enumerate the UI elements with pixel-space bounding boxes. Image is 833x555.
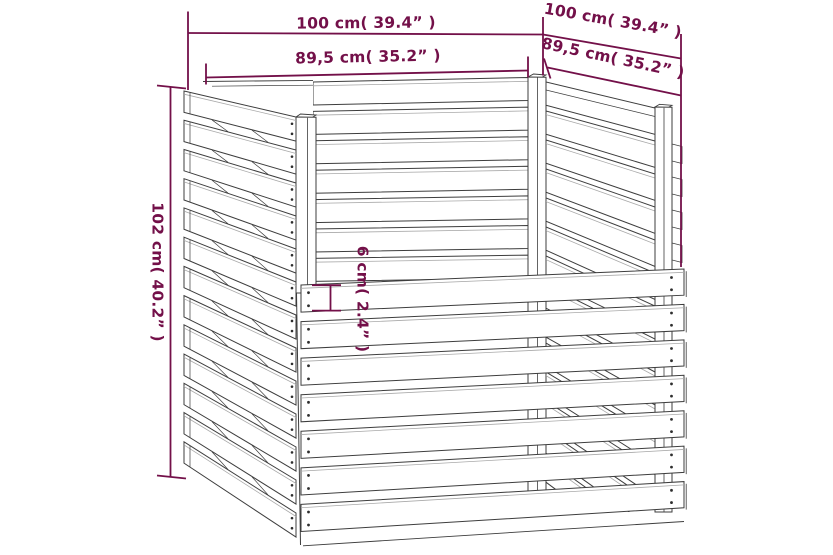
- screw-dot: [291, 428, 294, 431]
- screw-dot: [291, 122, 294, 125]
- dimension-label-height: 102 cm( 40.2” ): [149, 202, 167, 341]
- screw-dot: [670, 418, 673, 421]
- screw-dot: [291, 451, 294, 454]
- screw-dot: [670, 453, 673, 456]
- screw-dot: [291, 133, 294, 136]
- screw-dot: [307, 524, 310, 527]
- back-top-edge: [203, 80, 313, 81]
- screw-dot: [670, 466, 673, 469]
- dim-line: [188, 33, 543, 35]
- screw-dot: [670, 288, 673, 291]
- screw-dot: [291, 221, 294, 224]
- screw-dot: [291, 484, 294, 487]
- screw-dot: [670, 347, 673, 350]
- screw-dot: [291, 395, 294, 398]
- screw-dot: [291, 231, 294, 234]
- screw-dot: [291, 385, 294, 388]
- screw-dot: [307, 291, 310, 294]
- post-body: [296, 117, 316, 293]
- screw-dot: [670, 383, 673, 386]
- screw-dot: [670, 395, 673, 398]
- screw-dot: [307, 364, 310, 367]
- screw-dot: [670, 276, 673, 279]
- back-top-edge: [212, 85, 313, 86]
- dimension-label-slat-height: 6 cm( 2.4” ): [354, 246, 372, 353]
- screw-dot: [291, 264, 294, 267]
- screw-dot: [291, 155, 294, 158]
- screw-dot: [307, 328, 310, 331]
- screw-dot: [307, 451, 310, 454]
- screw-dot: [291, 297, 294, 300]
- line-drawing-canvas: 100 cm( 39.4” ) 89,5 cm( 35.2” ) 100 cm(…: [0, 0, 833, 555]
- back-wall-top-edge: [203, 80, 313, 86]
- corner-edge: [297, 293, 301, 545]
- dimension-label-front-inner-width: 89,5 cm( 35.2” ): [295, 46, 441, 67]
- screw-dot: [670, 359, 673, 362]
- screw-dot: [670, 324, 673, 327]
- screw-dot: [670, 489, 673, 492]
- screw-dot: [307, 487, 310, 490]
- back-wall-inside: [313, 78, 528, 282]
- left-wall: [184, 91, 296, 537]
- screw-dot: [307, 474, 310, 477]
- screw-dot: [291, 330, 294, 333]
- screw-dot: [291, 287, 294, 290]
- screw-dot: [307, 401, 310, 404]
- screw-dot: [307, 511, 310, 514]
- dim-tick: [157, 476, 186, 479]
- screw-dot: [291, 517, 294, 520]
- dimension-label-side-inner-depth: 89,5 cm( 35.2” ): [540, 34, 686, 82]
- screw-dot: [291, 494, 294, 497]
- screw-dot: [307, 414, 310, 417]
- screw-dot: [670, 430, 673, 433]
- screw-dot: [307, 341, 310, 344]
- screw-dot: [291, 320, 294, 323]
- screw-dot: [291, 353, 294, 356]
- screw-dot: [307, 437, 310, 440]
- composter-dimension-diagram: 100 cm( 39.4” ) 89,5 cm( 35.2” ) 100 cm(…: [0, 0, 833, 555]
- dimension-label-side-depth: 100 cm( 39.4” ): [543, 0, 683, 42]
- dim-tick: [157, 86, 186, 89]
- dim-line: [206, 71, 528, 78]
- screw-dot: [291, 363, 294, 366]
- screw-dot: [291, 527, 294, 530]
- screw-dot: [291, 418, 294, 421]
- screw-dot: [307, 304, 310, 307]
- screw-dot: [291, 188, 294, 191]
- screw-dot: [291, 461, 294, 464]
- screw-dot: [291, 165, 294, 168]
- dimension-label-front-width: 100 cm( 39.4” ): [296, 13, 436, 32]
- screw-dot: [670, 312, 673, 315]
- screw-dot: [670, 501, 673, 504]
- screw-dot: [291, 254, 294, 257]
- screw-dot: [291, 198, 294, 201]
- screw-dot: [307, 377, 310, 380]
